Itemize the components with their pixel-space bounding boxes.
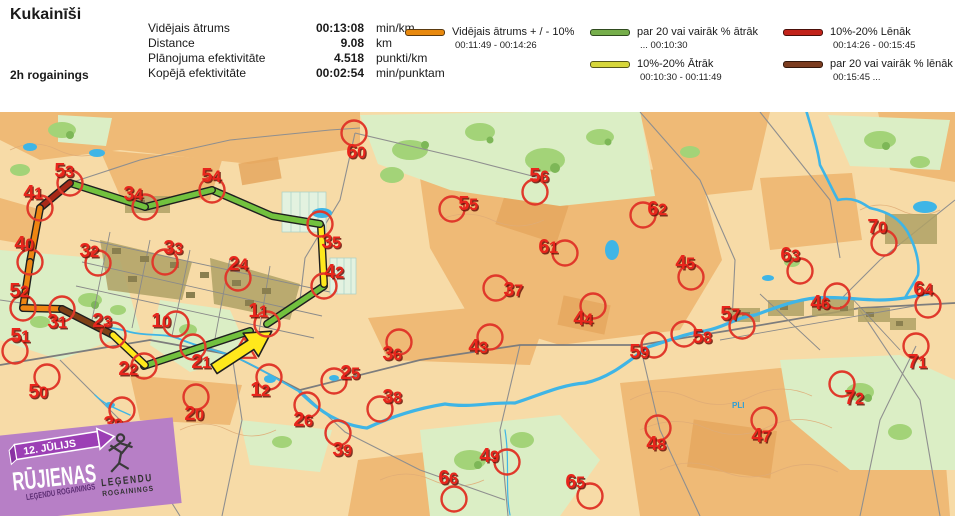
legend-column-2: par 20 vai vairāk % ātrāk... 00:10:3010%… [590, 24, 775, 88]
stats-table: Vidējais ātrums00:13:08min/kmDistance9.0… [148, 21, 445, 81]
legend-label: Vidējais ātrums + / - 10% [452, 26, 574, 38]
control-number: 45 [675, 252, 695, 274]
legend-label: 10%-20% Lēnāk [830, 26, 911, 38]
legend-column-3: 10%-20% Lēnāk00:14:26 - 00:15:45par 20 v… [783, 24, 968, 88]
control-number: 55 [458, 193, 478, 215]
control-number: 60 [346, 141, 366, 163]
event-type: 2h rogainings [10, 68, 89, 83]
stat-label: Distance [148, 36, 306, 51]
control-number: 49 [479, 445, 499, 467]
control-number: 72 [844, 387, 864, 409]
legend-item: 10%-20% Lēnāk [783, 24, 968, 40]
control-number: 62 [647, 198, 667, 220]
control-number: 58 [692, 326, 712, 348]
legend-range: ... 00:10:30 [590, 40, 775, 54]
control-number: 10 [151, 310, 171, 332]
legend-range: 00:15:45 ... [783, 72, 968, 86]
control-number: 24 [228, 253, 249, 275]
control-number: 54 [201, 165, 222, 187]
control-number: 11 [248, 300, 268, 322]
control-number: 43 [468, 336, 488, 358]
control-number: 51 [10, 325, 30, 347]
control-number: 61 [538, 236, 558, 258]
control-number: 22 [118, 358, 138, 380]
stat-row: Distance9.08km [148, 36, 445, 51]
stat-unit: km [376, 36, 392, 51]
control-number: 40 [14, 233, 34, 255]
control-number: 34 [123, 183, 144, 205]
legend-item: par 20 vai vairāk % lēnāk [783, 56, 968, 72]
stat-row: Plānojuma efektivitāte4.518punkti/km [148, 51, 445, 66]
control-number: 59 [629, 341, 649, 363]
control-number: 46 [810, 292, 830, 314]
control-number: 63 [780, 244, 800, 266]
control-number: 47 [751, 425, 771, 447]
stat-label: Kopējā efektivitāte [148, 66, 306, 81]
control-number: 31 [47, 311, 67, 333]
legend-item: 10%-20% Ātrāk [590, 56, 775, 72]
stat-value: 00:02:54 [306, 66, 364, 81]
control-number: 21 [191, 351, 211, 373]
stat-row: Vidējais ātrums00:13:08min/km [148, 21, 445, 36]
legend-item: par 20 vai vairāk % ātrāk [590, 24, 775, 40]
stat-row: Kopējā efektivitāte00:02:54min/punktam [148, 66, 445, 81]
control-number: 26 [293, 409, 313, 431]
control-number: 32 [79, 240, 99, 262]
control-number: 41 [23, 182, 43, 204]
legend-label: par 20 vai vairāk % lēnāk [830, 58, 953, 70]
legend-swatch [405, 29, 445, 36]
control-number: 66 [438, 467, 458, 489]
legend-swatch [783, 61, 823, 68]
map-area: PLI 535341413434545440403232333324243535… [0, 112, 955, 516]
stat-value: 4.518 [306, 51, 364, 66]
legend-label: 10%-20% Ātrāk [637, 58, 713, 70]
control-number: 35 [321, 231, 341, 253]
legend-range: 00:10:30 - 00:11:49 [590, 72, 775, 86]
orienteering-map: PLI 535341413434545440403232333324243535… [0, 112, 955, 516]
legend-range: 00:14:26 - 00:15:45 [783, 40, 968, 54]
legend-label: par 20 vai vairāk % ātrāk [637, 26, 758, 38]
app-window: Kukainīši 2h rogainings Punkti: 41 01:59… [0, 0, 968, 522]
control-number: 52 [9, 280, 29, 302]
control-number: 50 [28, 381, 48, 403]
control-number: 25 [340, 362, 360, 384]
route-segment [23, 308, 62, 309]
stat-value: 00:13:08 [306, 21, 364, 36]
stat-value: 9.08 [306, 36, 364, 51]
control-number: 44 [573, 308, 594, 330]
control-number: 53 [54, 160, 74, 182]
legend-swatch [590, 61, 630, 68]
control-number: 71 [907, 351, 927, 373]
legend-item: Vidējais ātrums + / - 10% [405, 24, 590, 40]
control-number: 57 [720, 303, 740, 325]
control-number: 37 [503, 279, 523, 301]
control-number: 48 [646, 433, 666, 455]
control-number: 65 [565, 471, 585, 493]
control-number: 70 [867, 216, 887, 238]
stat-unit: min/punktam [376, 66, 445, 81]
control-number: 23 [92, 310, 112, 332]
control-number: 20 [184, 403, 204, 425]
control-number: 33 [163, 237, 183, 259]
control-number: 42 [324, 261, 344, 283]
legend-swatch [590, 29, 630, 36]
stat-label: Vidējais ātrums [148, 21, 306, 36]
control-number: 39 [332, 439, 352, 461]
water-label: PLI [732, 401, 744, 410]
control-number: 12 [250, 379, 270, 401]
control-number: 38 [382, 386, 402, 408]
legend-column-1: Vidējais ātrums + / - 10%00:11:49 - 00:1… [405, 24, 590, 56]
legend-swatch [783, 29, 823, 36]
stat-label: Plānojuma efektivitāte [148, 51, 306, 66]
control-number: 56 [529, 165, 549, 187]
legend-range: 00:11:49 - 00:14:26 [405, 40, 590, 54]
control-number: 36 [382, 343, 402, 365]
page-title: Kukainīši [10, 6, 81, 24]
control-number: 64 [913, 278, 934, 300]
